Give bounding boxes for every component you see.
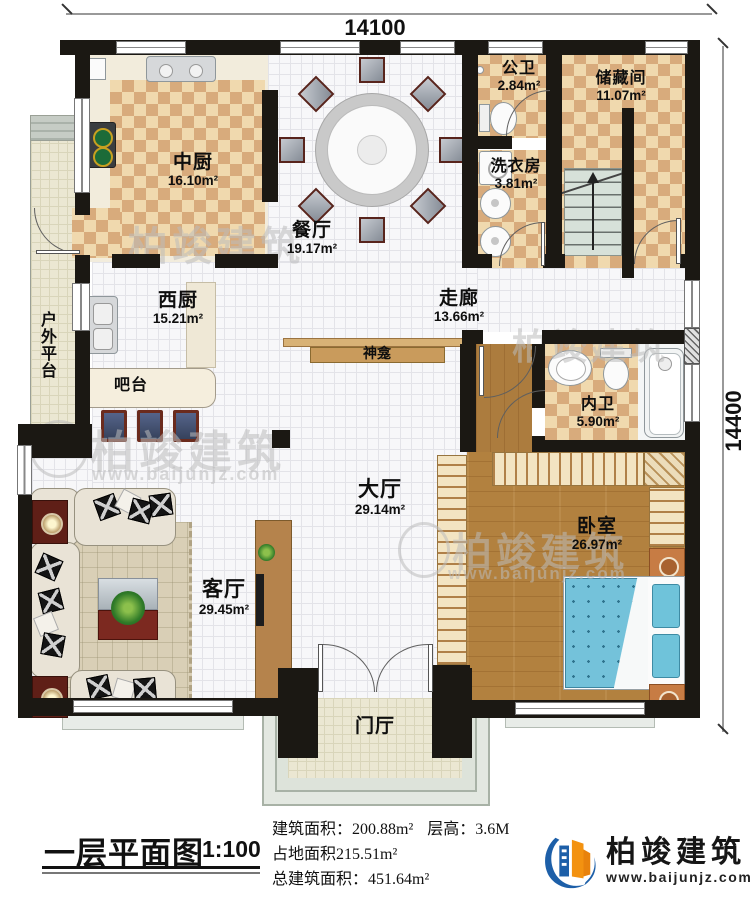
lamp-icon [41,513,63,535]
wall-corridor-north [462,254,492,268]
wall-corridor-north [543,254,565,268]
brand-url: www.baijunjz.com [606,869,750,885]
wardrobe-section [644,452,685,486]
dining-chair [279,137,305,163]
plant-icon [258,544,275,561]
room-label-keting: 客厅29.45m² [174,578,274,617]
room-label-chucang: 储藏间11.07m² [571,70,671,103]
stove [86,122,116,168]
window [116,41,186,54]
pillow [149,493,174,518]
drain-icon [491,237,499,245]
stair-direction-line [592,182,594,250]
dimension-right-value: 14400 [721,389,747,453]
burner-icon [93,147,113,167]
room-label-xiyifang: 洗衣房3.81m² [466,158,566,191]
platform-railing [30,115,78,141]
room-label-batai: 吧台 [96,377,166,395]
wall-bath-south [532,440,688,452]
bed-pillow [652,584,680,628]
room-label-zhongchu: 中厨16.10m² [143,152,243,188]
window [73,700,233,713]
sink-basin [93,328,113,350]
bed-pillow [652,634,680,678]
watermark-logo-icon [398,522,450,578]
wardrobe [492,452,644,486]
entry-door-leaf [428,644,433,692]
burner-icon [93,128,113,148]
plant-icon [111,591,145,625]
sink-basin [159,64,173,78]
window [684,280,700,328]
title-underline [42,866,260,869]
drain-icon [491,199,499,207]
bed-sheet-fold [614,578,648,688]
side-table [32,500,68,544]
stats-line-3: 总建筑面积：451.64m² [272,867,538,892]
brand-logo-icon [540,832,598,890]
door-leaf [36,250,80,254]
wall-bath-north [462,330,483,344]
toilet-tank [479,104,490,132]
fridge [88,58,106,80]
stats-line-1: 建筑面积：200.88m²层高：3.6M [272,817,538,842]
wall-west [75,255,90,285]
building-area: 建筑面积：200.88m² [272,821,413,838]
window [515,702,645,715]
area-stats: 建筑面积：200.88m²层高：3.6M 占地面积215.51m² 总建筑面积：… [272,817,538,892]
room-label-zoulang: 走廊13.66m² [409,288,509,324]
sink-basin [189,64,203,78]
entry-pier [278,668,318,758]
watermark-url: www.baijunjz.com [92,464,279,485]
window [488,41,543,54]
room-label-xichu: 西厨15.21m² [128,290,228,326]
wall-bath-north [542,330,688,344]
lamp-icon [659,557,679,577]
brand-text-block: 柏竣建筑 www.baijunjz.com [606,837,750,885]
room-label-canting: 餐厅19.17m² [262,220,362,256]
wardrobe-side [649,487,685,547]
wall-stairs-storage [622,108,634,278]
window [72,283,90,331]
company-logo: 柏竣建筑 www.baijunjz.com [540,832,750,890]
bay-window-sill [62,714,244,730]
window [400,41,455,54]
wall-kitchen-south [112,254,160,268]
room-label-pingtai: 户外平台 [33,295,55,395]
dining-chair [359,217,385,243]
floor-height: 层高：3.6M [427,821,509,838]
wall-passage-west [460,344,476,452]
pillow [86,674,112,700]
title-underline-2 [42,872,260,874]
window [74,98,90,193]
outdoor-platform [30,115,78,455]
room-label-menting: 门厅 [325,716,425,737]
watermark-url: www.baijunjz.com [448,564,627,584]
window [684,364,700,422]
total-area: 总建筑面积：451.64m² [272,871,429,888]
floor-plan-page: 中厨16.10m² 餐厅19.17m² 公卫2.84m² 储藏间11.07m² … [0,0,750,897]
window [17,445,32,495]
stats-line-2: 占地面积215.51m² [272,842,538,867]
wall-corridor-north [680,254,700,268]
dining-table-center [357,135,387,165]
room-label-neiwei: 内卫5.90m² [548,396,648,429]
laundry-basin [480,188,511,219]
room-label-woshi: 卧室26.97m² [547,516,647,552]
west-kitchen-sink [86,296,118,354]
door-leaf [541,222,545,266]
wall-kitchen-dining [262,90,278,202]
wall-bedroom-west [432,665,470,702]
room-label-dating: 大厅29.14m² [330,478,430,517]
kitchen-sink [146,56,216,82]
land-area: 占地面积215.51m² [272,846,397,863]
pillow [40,632,65,657]
wall-infill [684,328,700,364]
dimension-top-value: 14100 [322,15,428,41]
room-label-gongwei: 公卫2.84m² [479,60,559,93]
column [272,430,290,448]
scale-label: 1:100 [202,836,261,863]
window [280,41,360,54]
room-label-shenkan: 神龛 [337,346,417,362]
brand-name: 柏竣建筑 [606,837,750,869]
wall-bath-laundry [478,136,512,149]
sink-basin [93,303,113,325]
stair-up-arrow-icon [587,172,599,183]
door-leaf [676,218,681,264]
window [645,41,688,54]
dining-chair [359,57,385,83]
